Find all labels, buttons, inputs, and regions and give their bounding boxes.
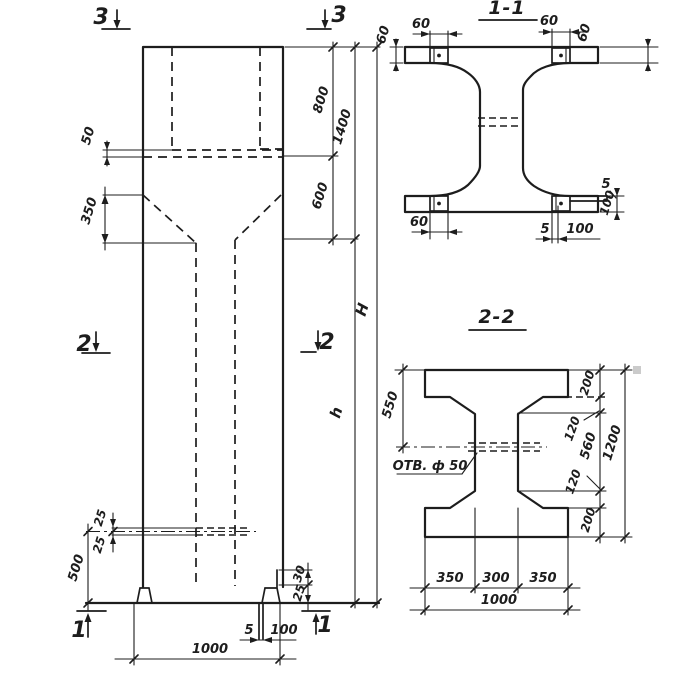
- dim-plate-width-left: 60: [412, 17, 430, 32]
- embedded-plates: [430, 48, 570, 211]
- dim-haunch-bottom: 120: [562, 467, 584, 495]
- dim-hole-elevation: 500: [66, 553, 88, 583]
- elevation-left-dims: 50 350 25 25 500: [66, 125, 117, 610]
- section-2-2-right-dims: 200 120 560 120 200 1200: [518, 364, 632, 543]
- scan-artifact: [633, 366, 641, 374]
- dim-flange-edge-right: 60: [575, 22, 595, 44]
- dim-foot-step-upper: 30: [290, 564, 308, 584]
- dim-taper-height: 350: [79, 196, 101, 226]
- web-hole-hidden-lines: [478, 118, 523, 126]
- section-marker-1-left: 1: [71, 618, 86, 643]
- dim-seam-offset: 50: [79, 125, 99, 147]
- dim-plate-width-bottom: 60: [410, 215, 428, 230]
- dim-head-height: 1400: [330, 107, 355, 146]
- base-width-dim: 1000: [115, 604, 296, 665]
- dim-bottom-center: 300: [482, 571, 509, 586]
- dim-bottom-plate-length: 100: [566, 222, 593, 237]
- dim-hole-lower: 25: [90, 535, 108, 555]
- dim-base-plate-length: 100: [270, 623, 297, 638]
- dim-bottom-right: 350: [529, 571, 556, 586]
- dim-neck-segment: 600: [310, 181, 332, 211]
- dim-web-height: 560: [578, 431, 600, 461]
- dim-section-height: 1200: [600, 423, 625, 462]
- section-marker-3-right: 3: [331, 3, 346, 28]
- elevation-seam-lines: [103, 47, 338, 157]
- section-2-2-bottom-dims: 350 300 350 1000: [410, 508, 580, 615]
- hole-callout-label: ОТВ. ф 50: [393, 459, 468, 474]
- drawing-canvas: 50 350 25 25 500 30 25 5 100: [0, 0, 700, 700]
- dim-bottom-total: 1000: [481, 593, 517, 608]
- section-1-1-dims: 60 60 60 60 60 5 100 5 100: [374, 14, 658, 243]
- hole-callout: ОТВ. ф 50: [393, 453, 477, 474]
- dim-flange-bottom: 200: [578, 506, 599, 534]
- section-2-2-outline: [425, 370, 568, 537]
- dim-foot-step-lower: 25: [290, 583, 308, 603]
- dim-hole-upper: 25: [91, 508, 109, 528]
- elevation-view: 50 350 25 25 500 30 25 5 100: [66, 3, 381, 665]
- dim-bottom-left: 350: [436, 571, 463, 586]
- section-marker-3-left: 3: [93, 5, 108, 30]
- section-2-2-title: 2-2: [478, 306, 515, 328]
- dim-flange-edge-left: 60: [374, 24, 394, 46]
- hole-lines: [396, 443, 547, 451]
- section-1-1-view: 1-1 60 60: [374, 0, 658, 243]
- section-1-1-title: 1-1: [488, 0, 525, 19]
- dim-side-plate-height: 100: [597, 189, 618, 217]
- dim-flange-top: 200: [577, 369, 598, 397]
- technical-drawing: 50 350 25 25 500 30 25 5 100: [0, 0, 700, 700]
- base-plate-dims: 5 100: [240, 623, 298, 643]
- dim-base-width: 1000: [192, 642, 228, 657]
- section-2-2-view: 2-2 ОТВ. ф 50 550 200 120 560: [380, 306, 641, 615]
- dim-base-plate-thickness: 5: [244, 623, 253, 638]
- section-marker-1-right: 1: [317, 613, 332, 638]
- section-marker-2-right: 2: [319, 330, 334, 355]
- dim-top-segment: 800: [311, 85, 333, 115]
- dim-bottom-gap: 5: [540, 222, 549, 237]
- dim-plate-width-right: 60: [540, 14, 558, 29]
- dim-haunch-top: 120: [561, 414, 583, 442]
- dim-shaft-height: h: [326, 405, 346, 420]
- section-1-1-outline: [405, 47, 598, 212]
- base-plate-edge: [259, 603, 263, 639]
- elevation-right-dims: 800 600 1400 h H: [285, 42, 381, 608]
- section-2-2-left-dim: 550: [380, 364, 425, 453]
- dim-top-to-hole: 550: [380, 390, 402, 420]
